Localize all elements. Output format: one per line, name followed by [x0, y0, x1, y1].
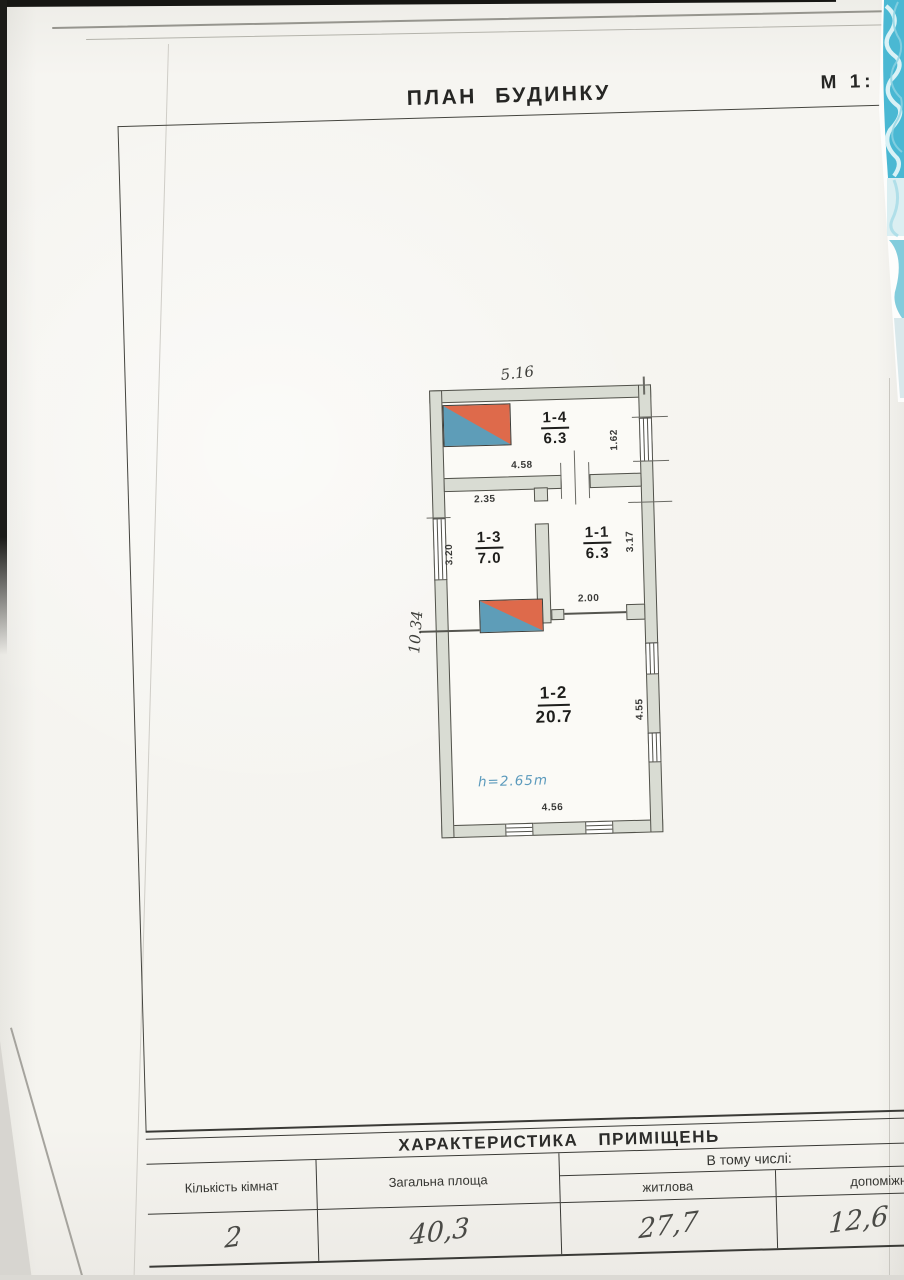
dim-456: 4.56 [542, 802, 564, 814]
dim-200: 2.00 [578, 593, 600, 605]
room-number: 1-3 [475, 529, 504, 550]
column-header-auxiliary: допоміжн [776, 1166, 904, 1197]
frame-border-left [118, 126, 147, 1132]
guilloche-pattern [874, 0, 904, 402]
value-rooms: 2 [148, 1209, 319, 1266]
window-symbol [639, 417, 653, 461]
staircase-symbol [442, 403, 511, 447]
window-symbol [505, 823, 533, 837]
wall-left [429, 390, 455, 838]
partition-line [420, 629, 480, 632]
room-area: 20.7 [522, 706, 587, 728]
dim-320: 3.20 [444, 534, 456, 574]
dim-235: 2.35 [474, 494, 496, 506]
column-header-total-area: Загальна площа [316, 1153, 560, 1209]
door-threshold-line [564, 611, 626, 615]
page-content: ПЛАН БУДИНКУ М 1: [0, 0, 904, 1280]
wall-bottom [441, 819, 663, 838]
window-symbol [585, 821, 613, 835]
window-symbol [645, 642, 659, 674]
characteristics-table: ХАРАКТЕРИСТИКА ПРИМІЩЕНЬ Кількість кімна… [146, 1109, 904, 1268]
room-label-1-2: 1-2 20.7 [521, 682, 586, 728]
room-area: 7.0 [462, 549, 518, 568]
value-living-area: 27,7 [561, 1196, 778, 1254]
room-area: 6.3 [527, 429, 583, 448]
scale-label: М 1: [820, 71, 875, 94]
ceiling-height-note: h=2.65m [478, 772, 548, 790]
room-number: 1-1 [582, 524, 611, 545]
floor-plan: 1-4 6.3 1-3 7.0 1-1 6.3 1-2 20.7 5.16 10… [429, 384, 663, 838]
dim-overall-height: 10.34 [404, 601, 427, 662]
dim-455: 4.55 [634, 689, 646, 729]
value-total-area: 40,3 [318, 1202, 562, 1261]
column-header-rooms: Кількість кімнат [147, 1160, 318, 1214]
room-label-1-4: 1-4 6.3 [527, 408, 584, 448]
dim-317: 3.17 [624, 521, 636, 561]
wall-interior [589, 473, 641, 488]
window-symbol [648, 732, 662, 762]
scanned-document-page: ПЛАН БУДИНКУ М 1: [0, 0, 904, 1280]
wall-interior [534, 487, 548, 501]
wall-interior [626, 604, 645, 621]
room-number: 1-2 [537, 683, 569, 707]
wall-interior [551, 609, 564, 620]
dimension-tick [560, 463, 562, 499]
room-label-1-3: 1-3 7.0 [461, 528, 518, 568]
dimension-tick [643, 377, 645, 395]
room-number: 1-4 [540, 409, 569, 430]
dim-458: 4.58 [511, 460, 533, 472]
page-title: ПЛАН БУДИНКУ [389, 81, 630, 112]
staircase-symbol [479, 598, 544, 633]
wall-top [429, 384, 651, 403]
dimension-tick [574, 450, 577, 504]
table-grid: Кількість кімнат Загальна площа В тому ч… [147, 1143, 904, 1266]
dim-overall-width: 5.16 [500, 362, 535, 384]
room-label-1-1: 1-1 6.3 [569, 523, 626, 563]
value-auxiliary-area: 12,6 [777, 1192, 904, 1249]
room-area: 6.3 [569, 544, 625, 563]
dim-window-162: 1.62 [608, 420, 620, 460]
